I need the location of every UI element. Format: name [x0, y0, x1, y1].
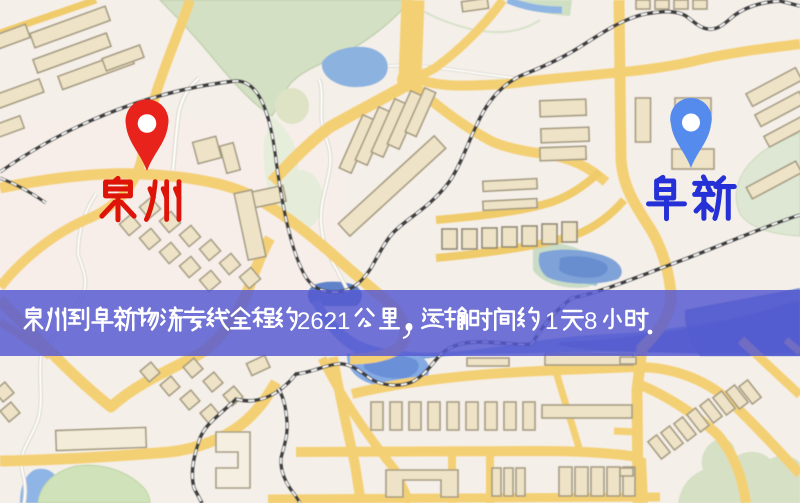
svg-text:8: 8	[584, 308, 597, 335]
svg-text:1: 1	[545, 308, 558, 335]
svg-text:2621: 2621	[297, 308, 350, 335]
